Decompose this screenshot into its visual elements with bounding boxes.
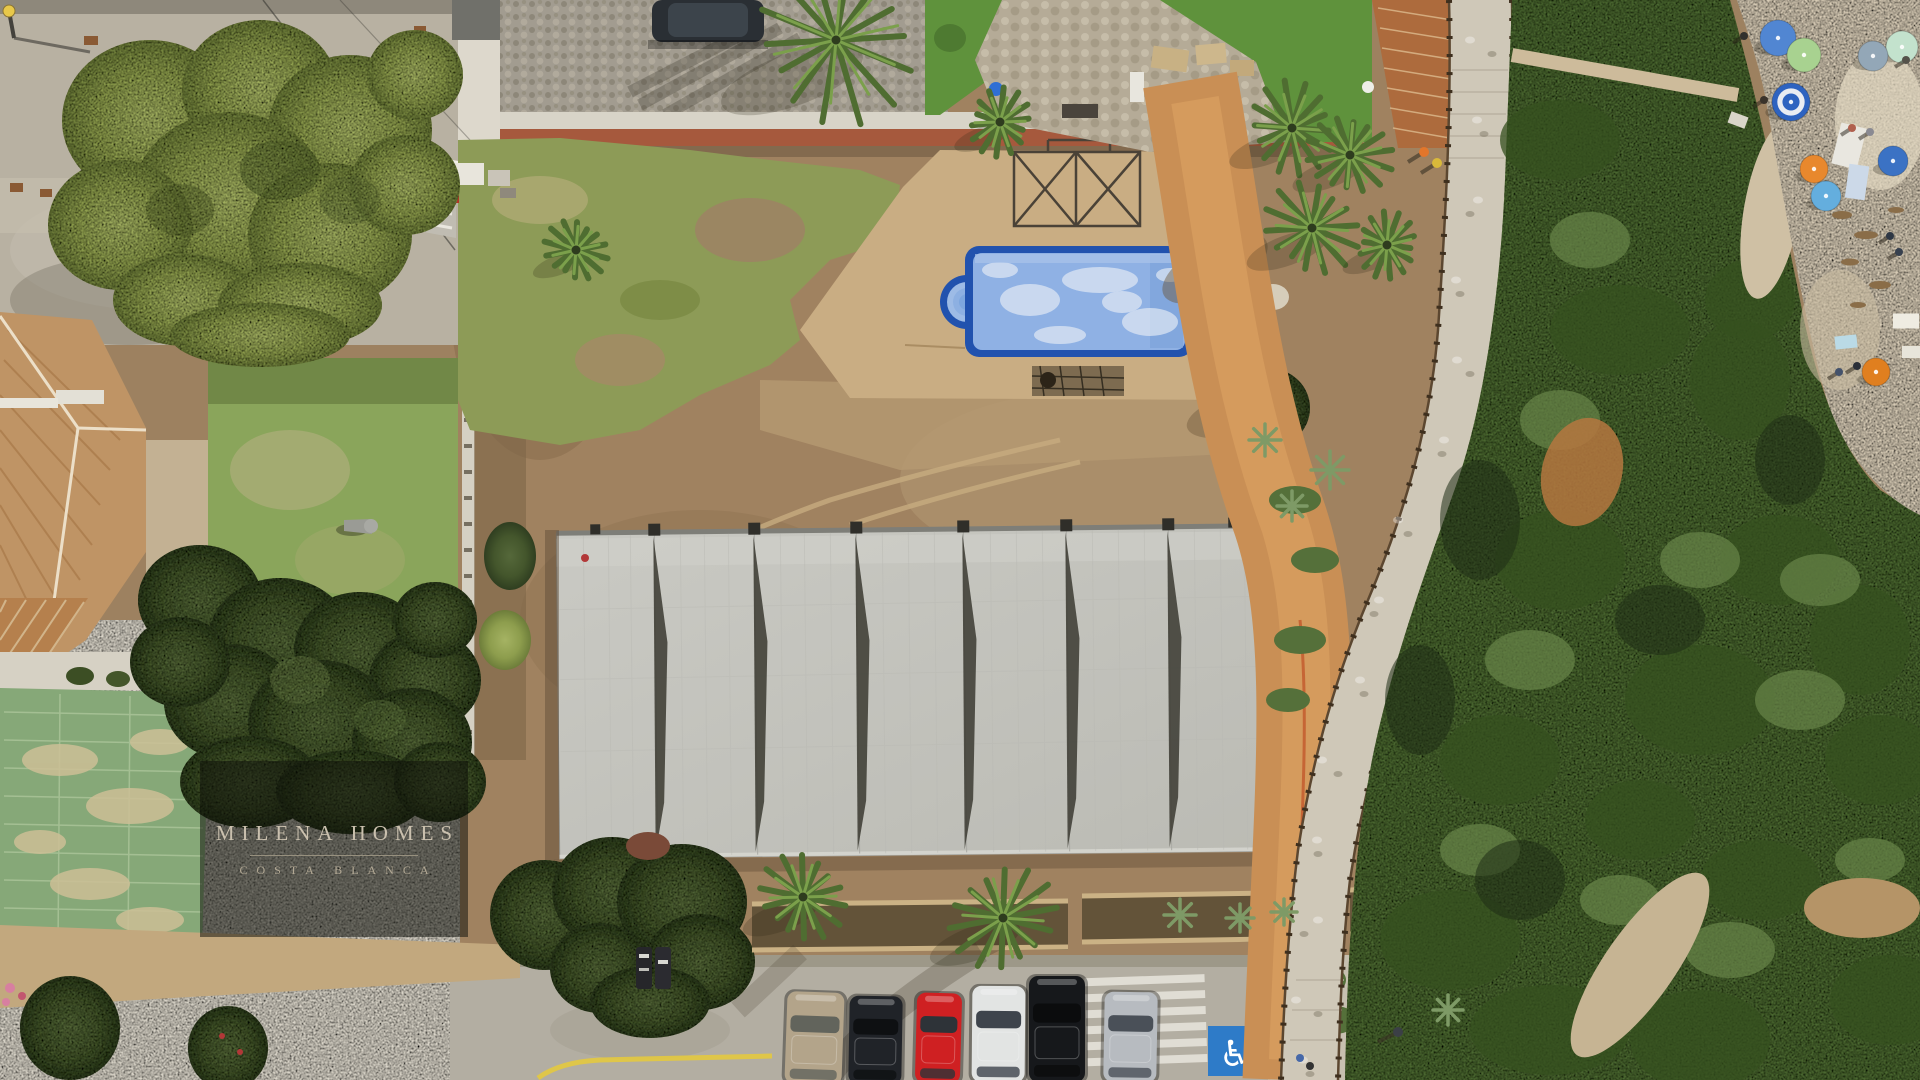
swimming-pool — [940, 246, 1193, 357]
car-beige-car — [781, 989, 847, 1080]
white-ball — [1362, 81, 1374, 93]
dirt-patch — [1804, 878, 1920, 938]
debris-mesh — [1032, 366, 1124, 396]
agave-plant — [1277, 491, 1307, 521]
villa-terrace-edge — [56, 390, 104, 404]
red-bush — [626, 832, 670, 860]
beach-towel — [1902, 346, 1920, 358]
car-red-car — [912, 990, 965, 1080]
watermark-region: COSTA BLANCA — [230, 863, 437, 878]
aerial-photo: ♿ — [0, 0, 1920, 1080]
neighbor-roof-edge — [452, 0, 500, 40]
car-white-car — [969, 984, 1029, 1080]
car-silver-suv — [1100, 989, 1161, 1080]
agave-plant — [1271, 899, 1297, 925]
building-west-shadow — [545, 530, 559, 860]
agave-plant — [1249, 424, 1281, 456]
agave-plant — [1311, 451, 1349, 489]
watermark-panel: MILENA HOMES COSTA BLANCA — [200, 761, 468, 937]
small-bush — [934, 24, 966, 52]
watermark-divider — [250, 855, 418, 856]
car-black-car — [845, 993, 906, 1080]
agave-plant — [1433, 995, 1463, 1025]
watermark-brand: MILENA HOMES — [209, 821, 459, 846]
building-under-construction — [550, 517, 1270, 873]
car-black-suv — [1026, 974, 1088, 1080]
beach-towel — [1834, 334, 1857, 349]
beach-towel — [1893, 314, 1919, 329]
agave-plant — [1164, 899, 1196, 931]
agave-plant — [1226, 904, 1254, 932]
